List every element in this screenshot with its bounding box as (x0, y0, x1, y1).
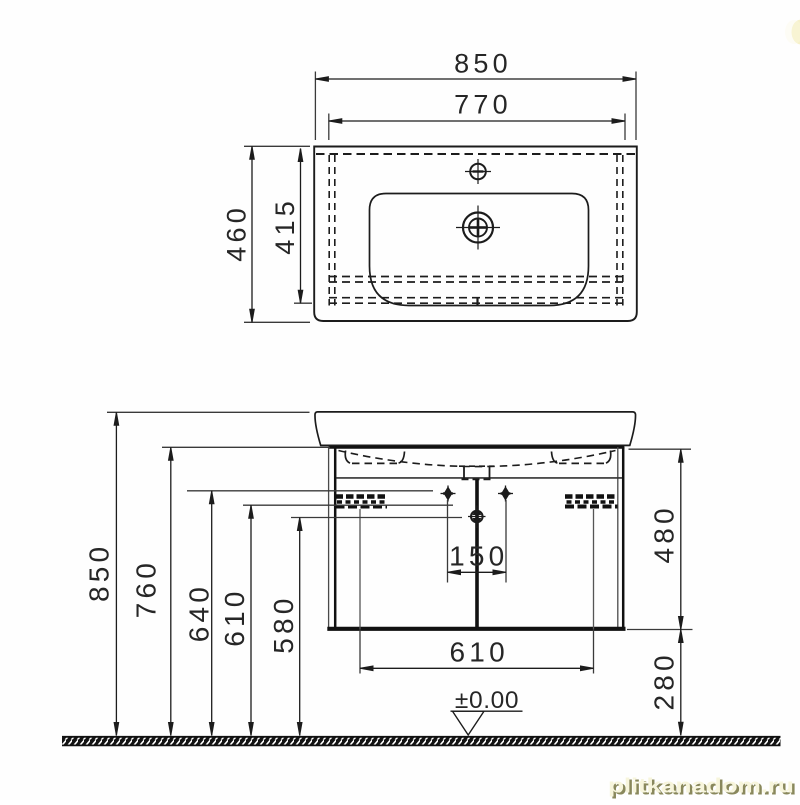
svg-text:plitkanadom.ru: plitkanadom.ru (608, 775, 794, 797)
svg-text:770: 770 (454, 90, 512, 120)
svg-text:580: 580 (268, 594, 299, 653)
svg-text:640: 640 (184, 583, 215, 642)
svg-text:610: 610 (450, 637, 509, 668)
svg-text:850: 850 (454, 49, 512, 79)
svg-text:460: 460 (222, 204, 252, 262)
svg-text:480: 480 (649, 504, 680, 563)
svg-text:760: 760 (131, 559, 162, 618)
svg-text:±0.00: ±0.00 (455, 687, 519, 714)
svg-text:415: 415 (270, 197, 300, 255)
svg-text:610: 610 (219, 587, 250, 646)
svg-text:850: 850 (84, 543, 115, 602)
svg-text:280: 280 (649, 651, 680, 710)
svg-text:150: 150 (449, 541, 508, 572)
